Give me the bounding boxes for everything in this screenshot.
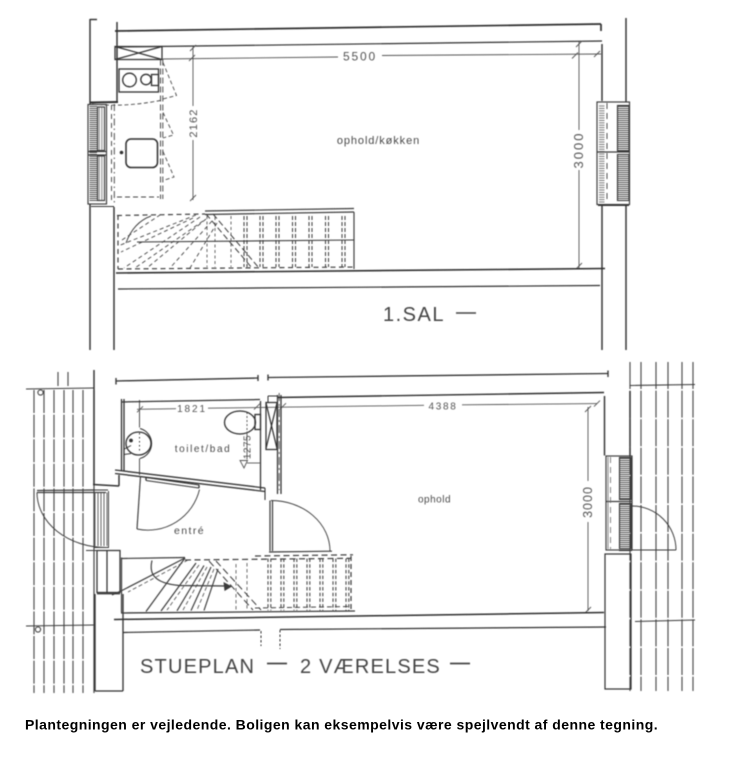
svg-text:STUEPLAN: STUEPLAN <box>140 656 255 678</box>
svg-text:3000: 3000 <box>571 132 586 169</box>
svg-text:entré: entré <box>174 525 205 537</box>
svg-text:1.SAL: 1.SAL <box>383 304 445 326</box>
svg-text:5500: 5500 <box>343 50 377 64</box>
svg-text:ophold: ophold <box>418 495 451 506</box>
svg-text:Plantegningen er vejledende. B: Plantegningen er vejledende. Boligen kan… <box>25 717 658 733</box>
svg-text:1275: 1275 <box>243 435 254 459</box>
svg-text:2162: 2162 <box>188 108 200 137</box>
svg-text:4388: 4388 <box>428 402 457 413</box>
svg-text:toilet/bad: toilet/bad <box>175 444 232 455</box>
svg-text:ophold/køkken: ophold/køkken <box>337 135 420 147</box>
svg-text:1821: 1821 <box>177 404 207 415</box>
svg-text:3000: 3000 <box>581 486 595 518</box>
svg-text:2 VÆRELSES: 2 VÆRELSES <box>300 656 441 678</box>
